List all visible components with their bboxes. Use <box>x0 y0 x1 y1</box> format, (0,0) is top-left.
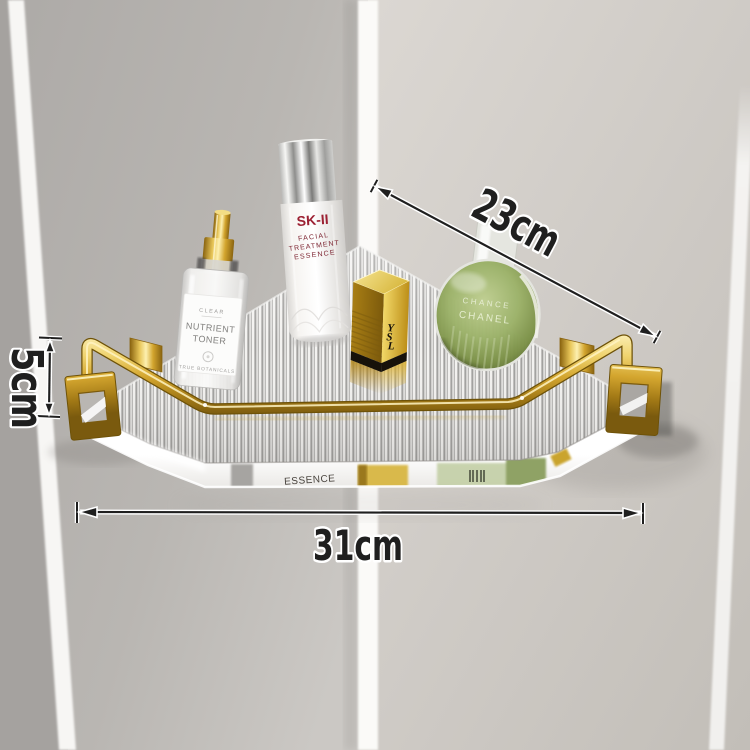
dimension-height: 5cm <box>1 338 62 430</box>
scene: ESSENCE CLEAR NUTRIENT TONER TRUE BOT <box>0 0 750 750</box>
ysl-lipstick: Y S L <box>349 269 409 395</box>
left-mount-bracket <box>65 372 121 441</box>
shelf-shadow-center <box>175 490 545 520</box>
height-label: 5cm <box>1 347 52 429</box>
svg-text:L: L <box>387 340 395 352</box>
skii-brand: SK-II <box>296 211 329 229</box>
toner-label: CLEAR NUTRIENT TONER TRUE BOTANICALS <box>178 293 243 376</box>
product-photo-corner-shelf: ESSENCE CLEAR NUTRIENT TONER TRUE BOT <box>0 0 750 750</box>
right-mount-bracket <box>606 364 663 435</box>
width-label: 31cm <box>313 521 403 570</box>
toner-reflection-patch <box>231 464 253 488</box>
skii-cap <box>278 139 336 205</box>
